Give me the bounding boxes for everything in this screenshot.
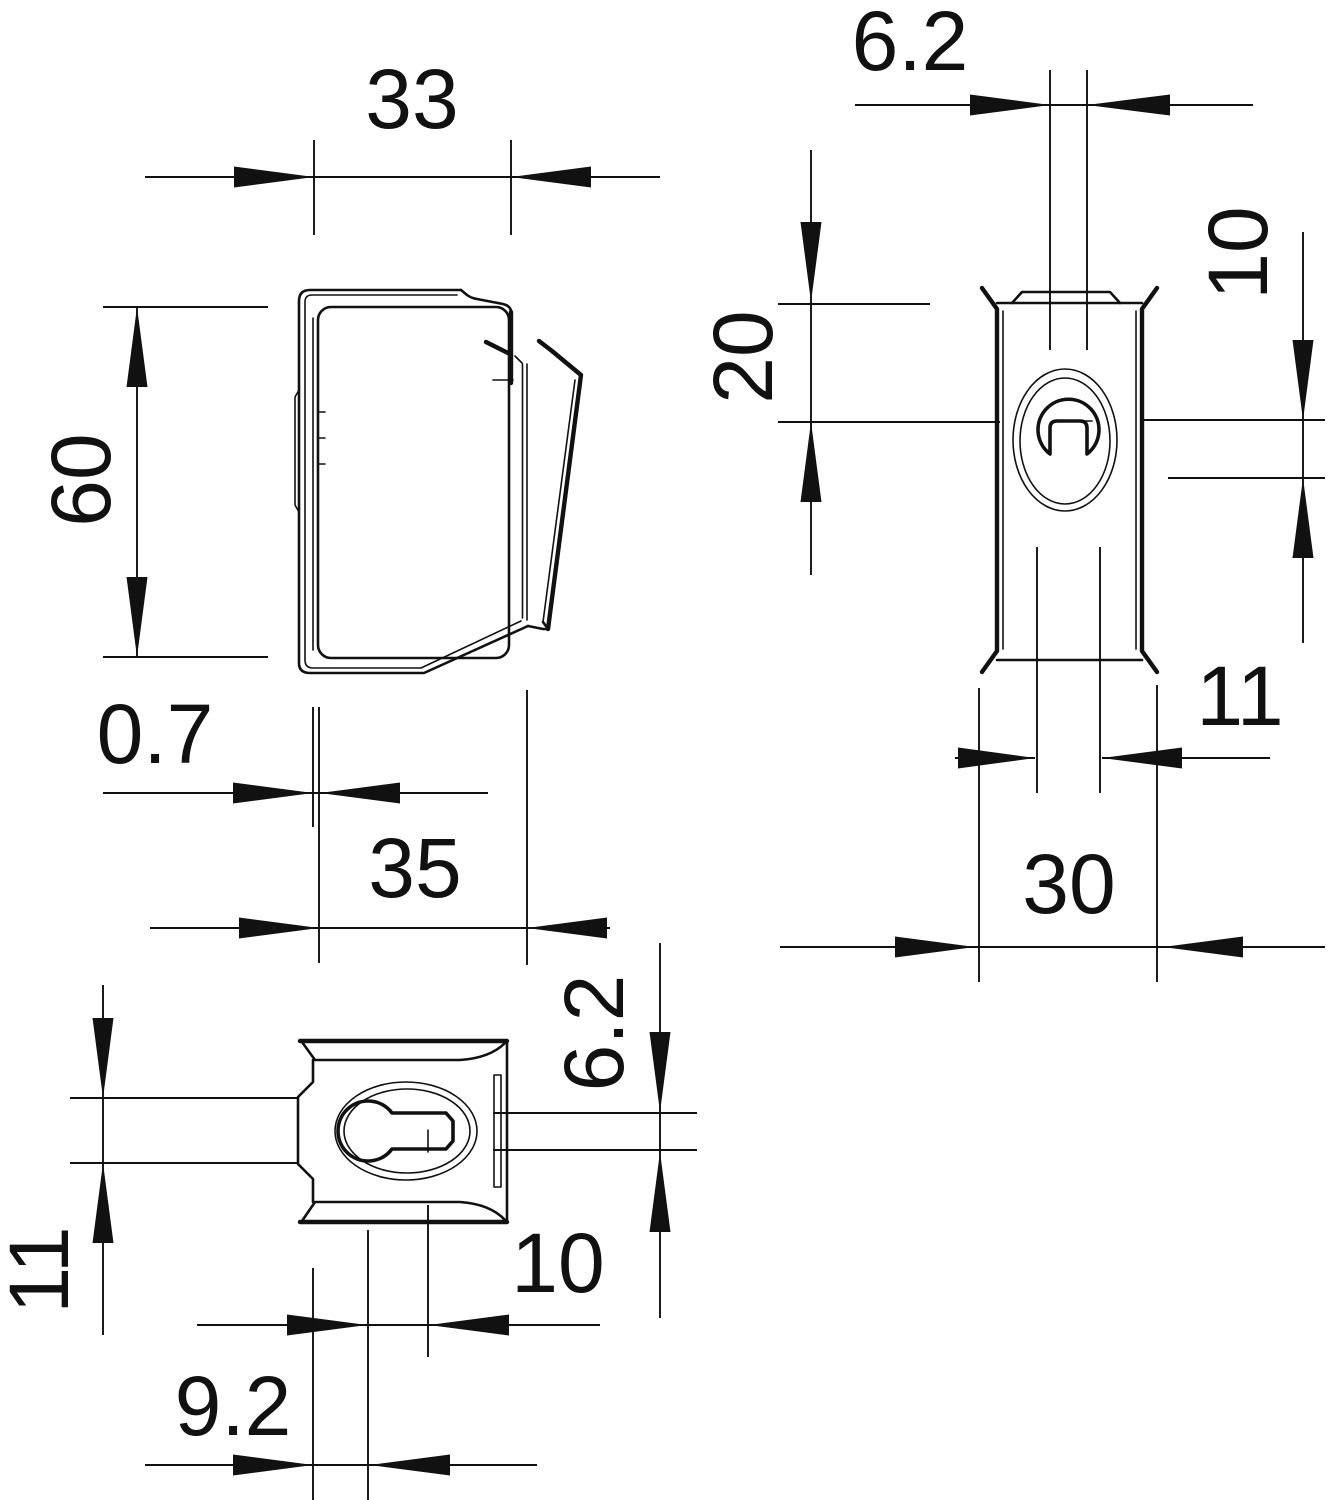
arrowhead — [93, 1018, 114, 1098]
side-hook-tab — [486, 342, 510, 354]
arrowhead — [801, 222, 822, 302]
arrowhead — [895, 937, 975, 958]
arrowhead — [127, 307, 148, 387]
dim-front-20-lines — [778, 150, 1000, 575]
arrowhead — [801, 422, 822, 502]
dim-side-height: 60 — [34, 307, 268, 657]
top-boss-outer — [335, 1082, 477, 1180]
dim-front-hole-diameter: 11 — [955, 547, 1284, 793]
top-view-outline — [298, 1041, 507, 1222]
front-right-flare — [1142, 288, 1157, 672]
dim-label-side-depth: 35 — [368, 821, 461, 915]
dim-label-front-30: 30 — [1022, 837, 1115, 931]
arrowhead — [287, 1315, 367, 1336]
arrowhead — [650, 1032, 671, 1112]
arrowhead — [233, 783, 313, 804]
arrowhead — [511, 167, 591, 188]
dim-front-top-to-slot: 20 — [696, 150, 1000, 575]
top-left-edge-with-tab — [298, 1060, 313, 1202]
front-keyhole-slot — [1038, 399, 1099, 454]
dim-label-side-height: 60 — [34, 433, 128, 526]
dim-label-top-10: 10 — [511, 1216, 604, 1310]
dim-top-edge-to-hole: 9.2 — [145, 1268, 537, 1500]
dim-side-width-lines — [145, 140, 660, 235]
technical-drawing: 33 60 0.7 35 6.2 — [0, 0, 1334, 1500]
top-front-face-strip — [494, 1075, 501, 1187]
side-view-outline — [295, 290, 581, 673]
arrowhead — [320, 783, 400, 804]
top-upper-plate-edge — [302, 1042, 505, 1060]
dim-side-depth: 35 — [150, 690, 610, 965]
front-boss-outer — [1013, 369, 1117, 511]
front-view-outline — [982, 288, 1157, 672]
dim-side-width: 33 — [145, 52, 660, 235]
arrowhead — [958, 748, 1035, 769]
dim-top-tab-width: 11 — [0, 985, 298, 1335]
arrowhead — [234, 167, 314, 188]
dim-label-top-11: 11 — [0, 1226, 86, 1313]
arrowhead — [527, 918, 607, 939]
arrowhead — [93, 1163, 114, 1243]
arrowhead — [650, 1152, 671, 1232]
front-flare-inner-lines — [1003, 311, 1136, 649]
side-flap-tip — [528, 622, 548, 629]
dim-top-hole-to-slot-end: 10 — [197, 1205, 605, 1500]
top-lower-plate-edge — [302, 1202, 505, 1221]
top-keyhole-slot — [338, 1101, 453, 1161]
dim-label-side-thickness: 0.7 — [97, 687, 214, 781]
front-plate-edges — [997, 303, 1142, 660]
arrowhead — [127, 577, 148, 657]
dim-label-front-slot-width: 6.2 — [852, 0, 969, 88]
arrowhead — [1102, 748, 1182, 769]
side-inner-body — [318, 307, 509, 658]
arrowhead — [370, 1455, 450, 1476]
dim-label-front-10: 10 — [1191, 206, 1285, 299]
dim-label-side-width: 33 — [365, 52, 458, 146]
arrowhead — [1293, 478, 1314, 558]
arrowhead — [1087, 95, 1170, 116]
front-top-tab — [1012, 292, 1120, 303]
side-inner-shell — [305, 295, 521, 668]
dim-label-front-20: 20 — [696, 310, 790, 403]
front-left-flare — [982, 288, 997, 672]
arrowhead — [239, 918, 319, 939]
side-front-face-strip — [515, 356, 527, 620]
dim-label-top-62: 6.2 — [547, 975, 641, 1092]
arrowhead — [970, 95, 1050, 116]
dim-front-slot-to-hole: 10 — [1140, 206, 1325, 643]
dim-label-top-92: 9.2 — [175, 1359, 292, 1453]
arrowhead — [1293, 340, 1314, 420]
arrowhead — [429, 1315, 509, 1336]
dim-label-front-11: 11 — [1196, 649, 1283, 743]
arrowhead — [1163, 937, 1243, 958]
side-flap-inner — [543, 380, 575, 622]
arrowhead — [233, 1455, 313, 1476]
drawing-canvas: 33 60 0.7 35 6.2 — [0, 0, 1334, 1500]
